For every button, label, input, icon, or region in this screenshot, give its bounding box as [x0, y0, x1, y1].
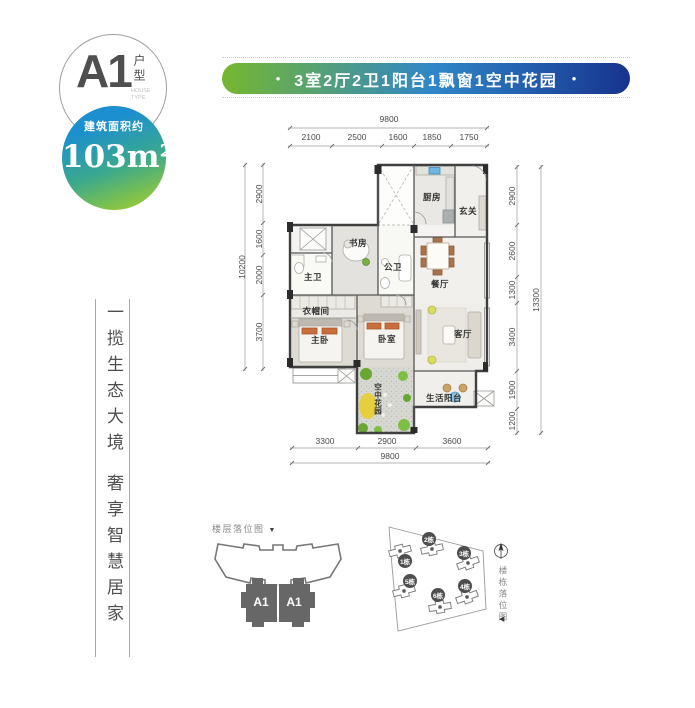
banner-dot-right: • [572, 71, 577, 86]
tagline-line1: 一揽生态大境 [104, 303, 123, 459]
dim-top-seg-1: 2500 [348, 132, 367, 142]
dim-bottom-seg-0: 3300 [316, 436, 335, 446]
unit-type-label-en: HOUSE TYPE [131, 88, 151, 101]
chevron-down-icon: ▼ [269, 527, 277, 534]
dim-right-seg-3: 3400 [507, 328, 517, 347]
dim-left-total: 10200 [237, 255, 247, 279]
dim-top-seg-2: 1600 [389, 132, 408, 142]
banner-text: 3室2厅2卫1阳台1飘窗1空中花园 [294, 67, 557, 91]
floor-diagram-title-text: 楼层落位图 [212, 524, 265, 534]
unit-code: A1 [76, 44, 131, 98]
unit-type-en-line2: TYPE [131, 95, 145, 101]
feature-banner: • 3室2厅2卫1阳台1飘窗1空中花园 • [222, 63, 630, 94]
area-label: 建筑面积约 [62, 118, 166, 134]
unit-type-en-line1: HOUSE [131, 88, 151, 94]
dim-top-total: 9800 [380, 114, 399, 124]
dim-left-seg-2: 2000 [254, 266, 264, 285]
dim-right-total: 13300 [531, 288, 541, 312]
tagline: 一揽生态大境奢享智慧居家 [100, 303, 126, 655]
floor-position-shape [215, 544, 341, 627]
room-label-living: 客厅 [454, 328, 472, 340]
dim-bottom-seg-1: 2900 [378, 436, 397, 446]
chevron-left-icon: ◀ [499, 615, 504, 623]
dim-left-seg-0: 2900 [254, 185, 264, 204]
dim-right-seg-5: 1200 [507, 412, 517, 431]
room-label-kitchen: 厨房 [423, 191, 441, 203]
flyer-page: A1 户型 HOUSE TYPE 建筑面积约 103m² • 3室2厅2卫1阳台… [0, 0, 695, 708]
dim-right-seg-4: 1900 [507, 381, 517, 400]
area-value: 103m² [62, 139, 166, 175]
unit-type-label: 户型 [131, 54, 148, 84]
banner-dot-left: • [276, 71, 281, 86]
room-label-study: 书房 [349, 237, 367, 249]
room-label-guest-bath: 公卫 [384, 261, 402, 273]
site-building-2: 2栋 [422, 532, 436, 546]
room-label-balcony: 生活阳台 [426, 392, 462, 404]
dim-top-seg-4: 1750 [460, 132, 479, 142]
floor-unit-a1-right: A1 [286, 595, 301, 609]
floor-diagram-title[interactable]: 楼层落位图 ▼ [212, 522, 277, 535]
site-building-5: 5栋 [403, 574, 417, 588]
dim-top-seg-3: 1850 [423, 132, 442, 142]
dotted-rule-bottom [222, 97, 630, 98]
room-label-dining: 餐厅 [431, 278, 449, 290]
site-building-1: 1栋 [398, 554, 412, 568]
room-label-entry: 玄关 [459, 205, 477, 217]
tagline-rule-left [95, 299, 96, 657]
room-label-master-bath: 主卫 [304, 271, 322, 283]
compass-icon [495, 543, 508, 560]
dim-left-seg-1: 1600 [254, 230, 264, 249]
site-building-3: 3栋 [457, 546, 471, 560]
room-label-master-bedroom: 主卧 [311, 334, 329, 346]
tagline-rule-right [129, 299, 130, 657]
tagline-line2: 奢享智慧居家 [104, 474, 123, 630]
dim-right-seg-0: 2900 [507, 187, 517, 206]
room-label-sky-garden: 空中花园 [373, 383, 384, 415]
site-building-6: 6栋 [431, 588, 445, 602]
floor-unit-a1-left: A1 [253, 595, 268, 609]
room-label-cloakroom: 衣帽间 [302, 305, 329, 317]
dim-right-seg-1: 2600 [507, 242, 517, 261]
site-building-4: 4栋 [458, 579, 472, 593]
dotted-rule-top [222, 57, 630, 58]
dim-left-seg-3: 3700 [254, 323, 264, 342]
dim-right-seg-2: 1300 [507, 281, 517, 300]
room-label-bedroom: 卧室 [378, 333, 396, 345]
area-badge: 建筑面积约 103m² [62, 106, 166, 210]
dim-bottom-total: 9800 [381, 451, 400, 461]
dim-bottom-seg-2: 3600 [443, 436, 462, 446]
dim-top-seg-0: 2100 [302, 132, 321, 142]
